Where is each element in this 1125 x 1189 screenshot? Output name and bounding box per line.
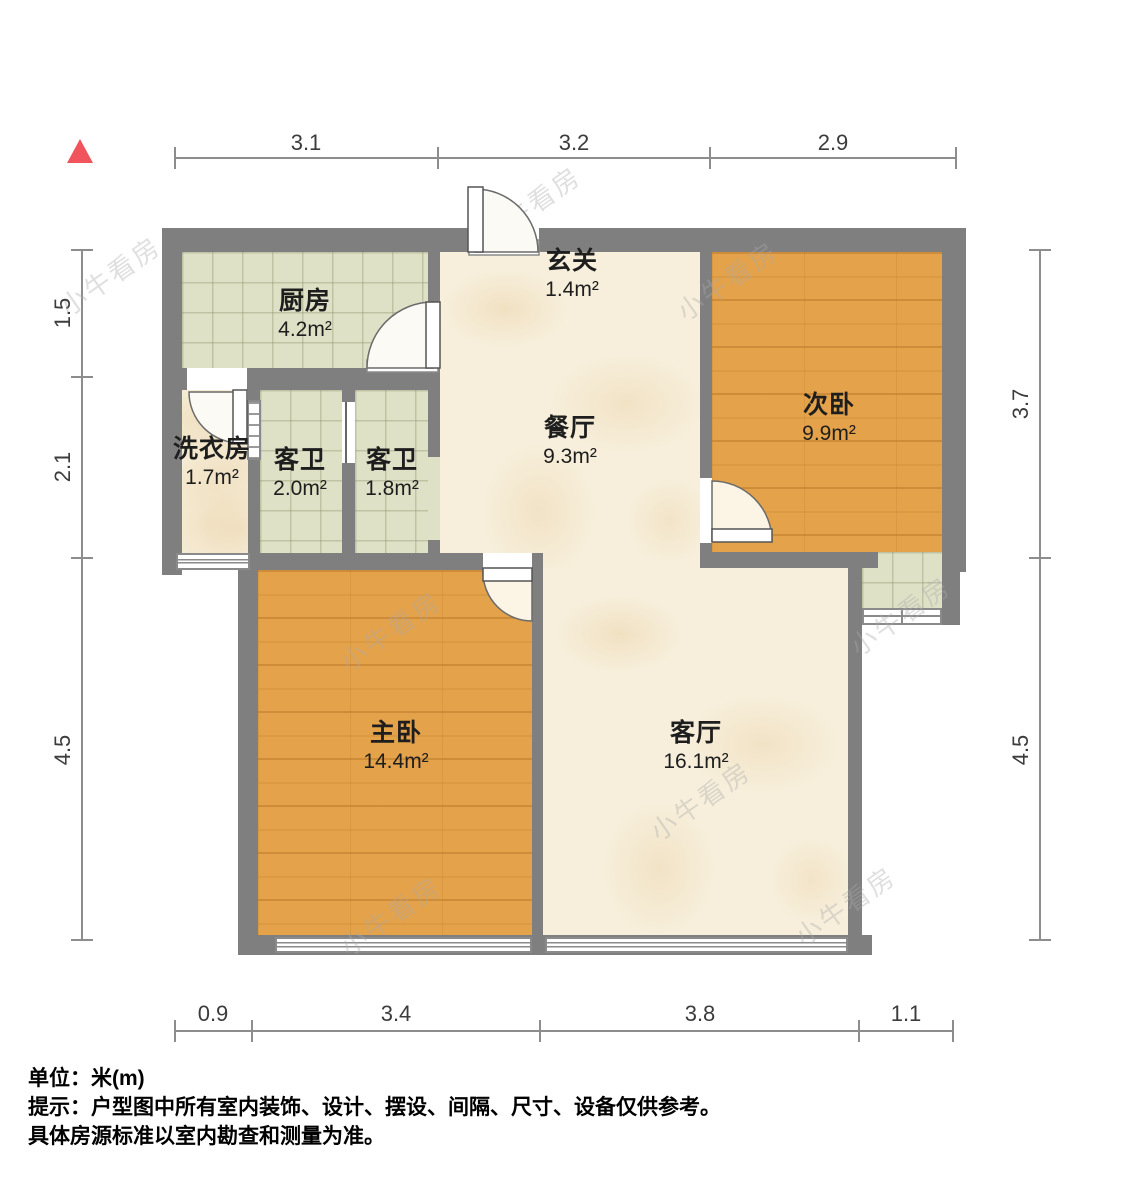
room-area: 2.0m² xyxy=(273,476,327,502)
room-label-second-bedroom: 次卧 9.9m² xyxy=(802,392,856,447)
room-label-dining: 餐厅 9.3m² xyxy=(543,415,597,470)
door-symbols xyxy=(0,0,1125,1189)
unit-note: 单位：米(m) xyxy=(28,1064,721,1093)
entry-door-leaf xyxy=(468,187,483,252)
room-label-living: 客厅 16.1m² xyxy=(663,720,728,775)
room-area: 16.1m² xyxy=(663,749,728,775)
room-area: 1.4m² xyxy=(545,277,599,303)
room-label-kitchen: 厨房 4.2m² xyxy=(278,288,332,343)
room-name: 主卧 xyxy=(363,720,428,747)
room-name: 客卫 xyxy=(273,447,327,474)
room-name: 客厅 xyxy=(663,720,728,747)
kitchen-door-leaf xyxy=(426,302,440,368)
room-label-master-bedroom: 主卧 14.4m² xyxy=(363,720,428,775)
floor-plan: 小牛看房 小牛看房 小牛看房 小牛看房 小牛看房 小牛看房 小牛看房 小牛看房 … xyxy=(0,0,1125,1189)
room-area: 14.4m² xyxy=(363,749,428,775)
room-label-laundry: 洗衣房 1.7m² xyxy=(173,436,251,491)
second-door-leaf xyxy=(712,529,772,542)
room-name: 客卫 xyxy=(365,447,419,474)
room-area: 1.7m² xyxy=(173,465,251,491)
room-name: 次卧 xyxy=(802,392,856,419)
room-name: 厨房 xyxy=(278,288,332,315)
room-area: 1.8m² xyxy=(365,476,419,502)
room-name: 玄关 xyxy=(545,248,599,275)
room-area: 4.2m² xyxy=(278,317,332,343)
room-name: 洗衣房 xyxy=(173,436,251,463)
room-area: 9.9m² xyxy=(802,421,856,447)
disclaimer-line2: 具体房源标准以室内勘查和测量为准。 xyxy=(28,1122,721,1151)
room-name: 餐厅 xyxy=(543,415,597,442)
room-label-bath2: 客卫 1.8m² xyxy=(365,447,419,502)
master-door-leaf xyxy=(483,568,532,581)
room-label-entry: 玄关 1.4m² xyxy=(545,248,599,303)
room-label-bath1: 客卫 2.0m² xyxy=(273,447,327,502)
room-area: 9.3m² xyxy=(543,444,597,470)
entry-door-arc xyxy=(475,189,538,252)
kitchen-door-arc xyxy=(367,302,433,368)
footer-notes: 单位：米(m) 提示：户型图中所有室内装饰、设计、摆设、间隔、尺寸、设备仅供参考… xyxy=(28,1064,721,1151)
disclaimer-line1: 提示：户型图中所有室内装饰、设计、摆设、间隔、尺寸、设备仅供参考。 xyxy=(28,1093,721,1122)
